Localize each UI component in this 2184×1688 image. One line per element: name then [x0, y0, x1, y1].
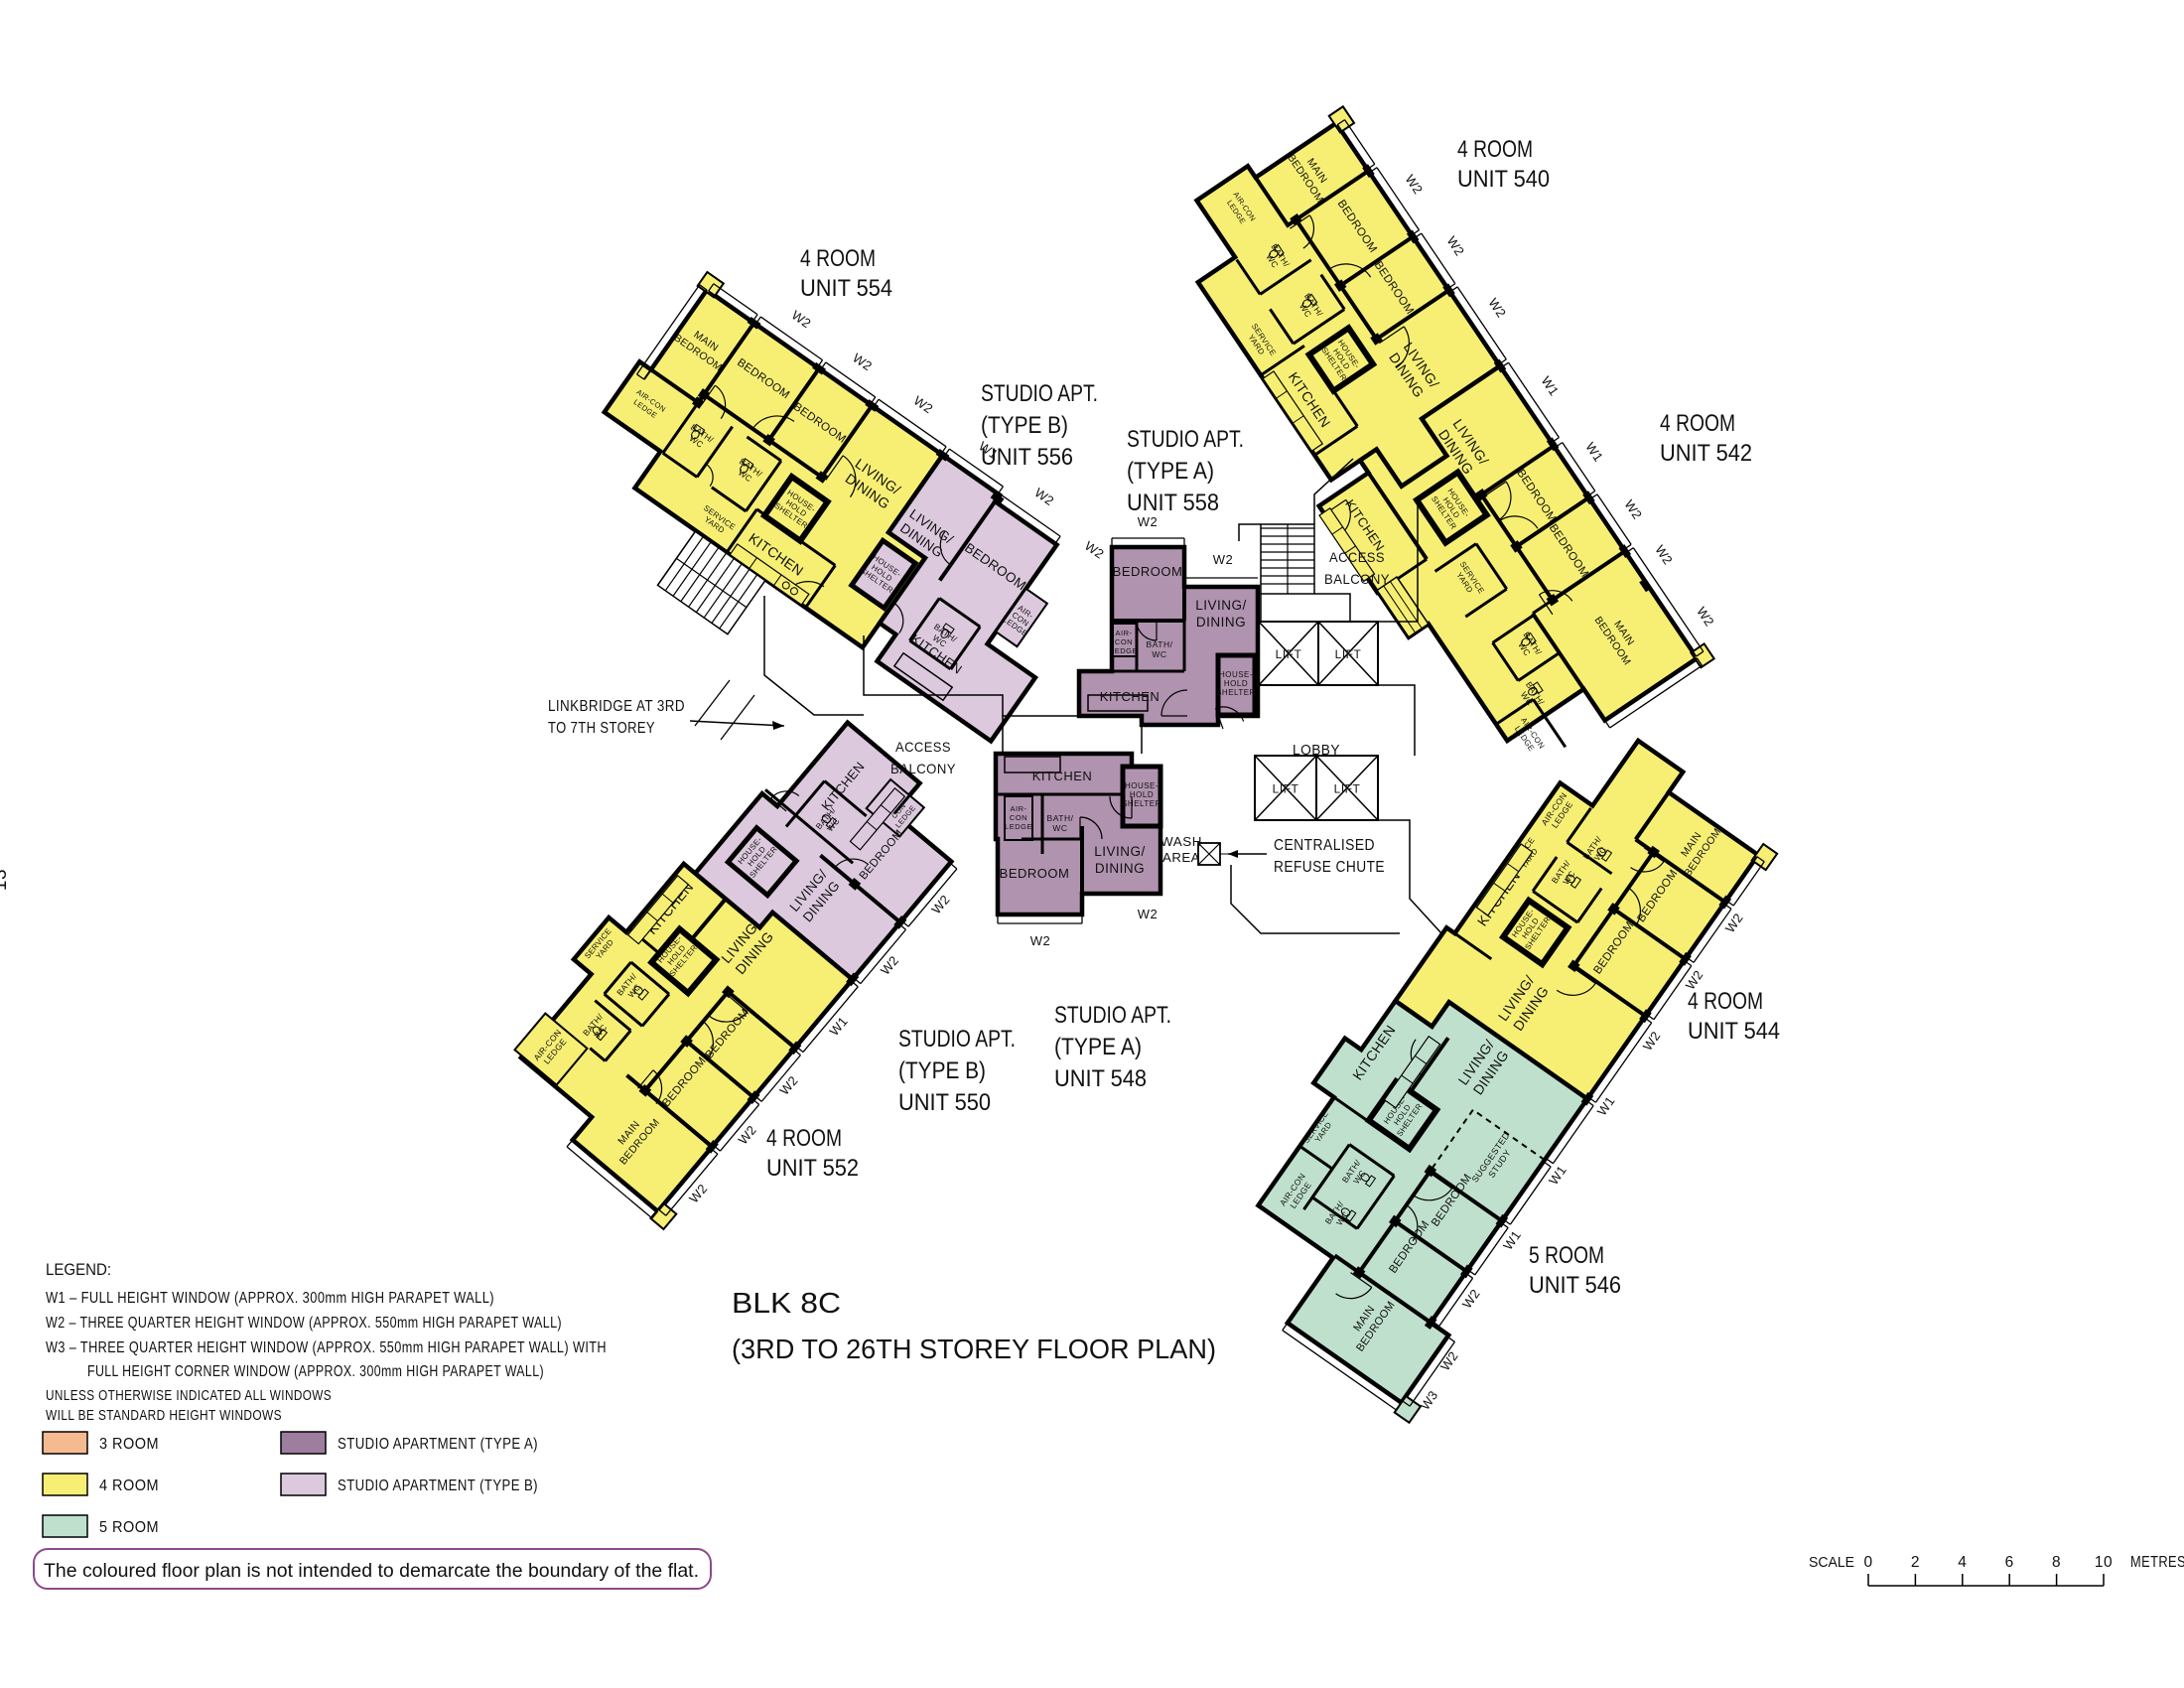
svg-text:AREA: AREA: [1162, 850, 1200, 865]
svg-text:4: 4: [1958, 1554, 1967, 1571]
svg-text:W2 – THREE QUARTER HEIGHT WIN: W2 – THREE QUARTER HEIGHT WINDOW (APPROX…: [46, 1315, 562, 1332]
svg-text:LINKBRIDGE AT 3RD: LINKBRIDGE AT 3RD: [548, 698, 685, 715]
svg-text:UNIT 544: UNIT 544: [1688, 1018, 1780, 1045]
svg-text:SHELTER: SHELTER: [1122, 799, 1161, 808]
svg-text:TO 7TH STOREY: TO 7TH STOREY: [548, 720, 655, 737]
svg-text:The coloured floor plan is not: The coloured floor plan is not intended …: [44, 1560, 699, 1582]
svg-text:UNIT 552: UNIT 552: [766, 1155, 859, 1182]
svg-text:CON: CON: [1115, 637, 1133, 646]
svg-text:ACCESS: ACCESS: [1329, 549, 1385, 565]
svg-text:4 ROOM: 4 ROOM: [1660, 410, 1735, 437]
svg-text:(TYPE B): (TYPE B): [898, 1057, 986, 1084]
svg-text:LIFT: LIFT: [1334, 782, 1361, 796]
svg-text:W2: W2: [1138, 514, 1159, 529]
svg-text:REFUSE CHUTE: REFUSE CHUTE: [1274, 859, 1385, 876]
svg-text:BLK 8C: BLK 8C: [732, 1288, 841, 1320]
svg-text:LEDGE: LEDGE: [1005, 822, 1032, 831]
svg-text:WASH: WASH: [1160, 834, 1202, 849]
svg-text:4 ROOM: 4 ROOM: [800, 245, 876, 272]
svg-text:2: 2: [1911, 1554, 1920, 1571]
svg-text:BEDROOM: BEDROOM: [1113, 564, 1183, 579]
svg-text:4 ROOM: 4 ROOM: [1457, 136, 1533, 163]
svg-text:STUDIO APARTMENT (TYPE A): STUDIO APARTMENT (TYPE A): [338, 1436, 538, 1453]
svg-text:(3RD TO 26TH STOREY FLOOR: (3RD TO 26TH STOREY FLOOR PLAN): [732, 1334, 1216, 1364]
svg-text:UNIT 556: UNIT 556: [981, 444, 1073, 471]
svg-text:(TYPE A): (TYPE A): [1054, 1034, 1142, 1060]
svg-text:8: 8: [2052, 1554, 2061, 1571]
svg-text:WC: WC: [1152, 649, 1166, 659]
svg-text:FULL HEIGHT CORNER WINDOW (APP: FULL HEIGHT CORNER WINDOW (APPROX. 300mm…: [87, 1363, 544, 1380]
svg-text:BALCONY: BALCONY: [1324, 571, 1390, 587]
svg-text:STUDIO APT.: STUDIO APT.: [1054, 1002, 1171, 1029]
svg-text:(TYPE B): (TYPE B): [981, 412, 1068, 439]
svg-text:0: 0: [1863, 1554, 1872, 1571]
svg-text:UNIT 550: UNIT 550: [898, 1089, 991, 1116]
svg-text:CENTRALISED: CENTRALISED: [1274, 837, 1375, 854]
svg-text:LIVING/: LIVING/: [1195, 598, 1247, 613]
svg-text:BATH/: BATH/: [1047, 813, 1074, 823]
svg-text:HOUSE-: HOUSE-: [1219, 670, 1253, 679]
svg-text:UNLESS OTHERWISE INDICATED ALL: UNLESS OTHERWISE INDICATED ALL WINDOWS: [46, 1388, 332, 1404]
svg-text:5 ROOM: 5 ROOM: [1529, 1242, 1604, 1269]
svg-text:STUDIO APT.: STUDIO APT.: [1127, 426, 1244, 453]
svg-text:LIFT: LIFT: [1276, 647, 1302, 661]
svg-text:UNIT 558: UNIT 558: [1127, 490, 1219, 516]
svg-text:HOLD: HOLD: [1224, 679, 1248, 688]
svg-text:LEDGE: LEDGE: [1110, 646, 1138, 655]
svg-text:6: 6: [2005, 1554, 2014, 1571]
svg-text:LIFT: LIFT: [1335, 647, 1362, 661]
svg-text:13: 13: [0, 869, 11, 891]
svg-text:10: 10: [2095, 1554, 2113, 1571]
svg-text:SHELTER: SHELTER: [1216, 688, 1256, 697]
svg-text:KITCHEN: KITCHEN: [1032, 769, 1093, 783]
svg-text:W3 – THREE QUARTER HEIGHT WIN: W3 – THREE QUARTER HEIGHT WINDOW (APPROX…: [46, 1339, 607, 1356]
svg-text:UNIT 542: UNIT 542: [1660, 440, 1752, 467]
svg-text:DINING: DINING: [1095, 861, 1145, 876]
svg-text:KITCHEN: KITCHEN: [1100, 689, 1160, 704]
svg-text:STUDIO APT.: STUDIO APT.: [898, 1026, 1016, 1053]
svg-text:5 ROOM: 5 ROOM: [99, 1519, 159, 1536]
svg-text:4 ROOM: 4 ROOM: [1688, 988, 1763, 1015]
svg-text:UNIT 540: UNIT 540: [1457, 166, 1550, 193]
svg-text:LIVING/: LIVING/: [1094, 844, 1146, 859]
svg-text:ACCESS: ACCESS: [895, 739, 951, 755]
svg-text:(TYPE A): (TYPE A): [1127, 458, 1214, 485]
svg-text:BATH/: BATH/: [1147, 639, 1173, 649]
svg-text:METRES: METRES: [2130, 1554, 2184, 1571]
svg-text:LOBBY: LOBBY: [1293, 742, 1340, 759]
svg-text:CON: CON: [1010, 813, 1027, 822]
svg-text:W1 – FULL HEIGHT WINDOW (APPR: W1 – FULL HEIGHT WINDOW (APPROX. 300mm H…: [46, 1290, 494, 1307]
svg-text:AIR-: AIR-: [1011, 804, 1027, 813]
svg-text:UNIT 546: UNIT 546: [1529, 1272, 1621, 1299]
svg-text:HOLD: HOLD: [1130, 790, 1154, 799]
svg-text:BEDROOM: BEDROOM: [1000, 866, 1070, 881]
svg-text:4 ROOM: 4 ROOM: [99, 1477, 159, 1494]
svg-text:BALCONY: BALCONY: [890, 761, 956, 776]
svg-text:WC: WC: [1052, 823, 1067, 833]
svg-text:HOUSE-: HOUSE-: [1125, 781, 1159, 790]
svg-text:DINING: DINING: [1196, 615, 1246, 630]
svg-text:UNIT 548: UNIT 548: [1054, 1065, 1147, 1092]
svg-text:LIFT: LIFT: [1273, 782, 1299, 796]
svg-text:STUDIO APT.: STUDIO APT.: [981, 380, 1098, 407]
svg-text:3 ROOM: 3 ROOM: [99, 1436, 159, 1453]
svg-text:W2: W2: [1138, 907, 1159, 921]
svg-text:STUDIO APARTMENT (TYPE B): STUDIO APARTMENT (TYPE B): [338, 1477, 538, 1494]
svg-text:W2: W2: [1213, 552, 1234, 567]
svg-text:AIR-: AIR-: [1116, 629, 1133, 637]
svg-text:4 ROOM: 4 ROOM: [766, 1125, 842, 1152]
svg-text:SCALE: SCALE: [1809, 1554, 1854, 1571]
svg-text:WILL BE STANDARD HEIGHT WINDOW: WILL BE STANDARD HEIGHT WINDOWS: [46, 1408, 282, 1424]
svg-text:LEGEND:: LEGEND:: [46, 1260, 111, 1279]
svg-text:UNIT 554: UNIT 554: [800, 275, 892, 302]
svg-text:W2: W2: [1030, 933, 1051, 948]
